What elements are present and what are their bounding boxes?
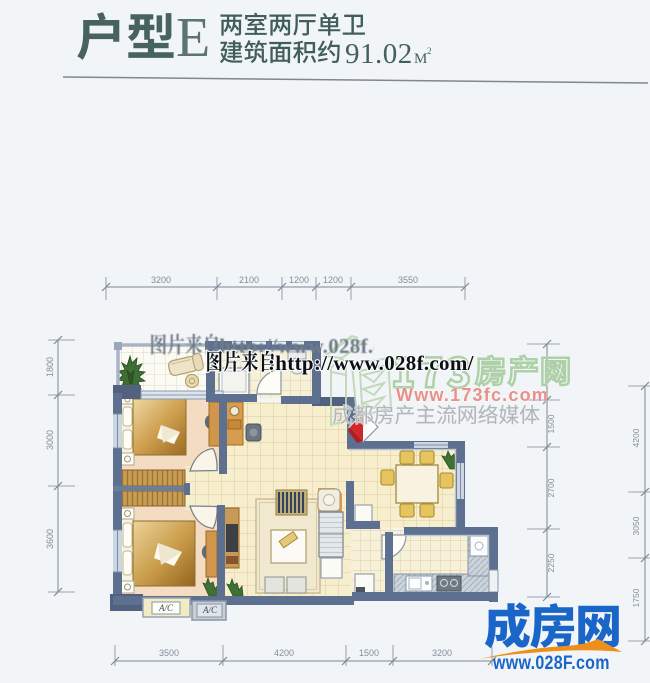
svg-text::http://www.028f.com/: :http://www.028f.com/ bbox=[268, 351, 475, 375]
svg-text:Www.173fc.com: Www.173fc.com bbox=[396, 385, 549, 405]
svg-text:1200: 1200 bbox=[289, 275, 309, 285]
svg-text:A/C: A/C bbox=[158, 603, 174, 613]
svg-text:4200: 4200 bbox=[274, 648, 294, 658]
svg-text:M: M bbox=[414, 51, 427, 67]
svg-text:www.028F.com: www.028F.com bbox=[492, 652, 610, 674]
svg-text:3000: 3000 bbox=[45, 430, 55, 450]
svg-text:91.02: 91.02 bbox=[345, 38, 413, 70]
svg-text:2100: 2100 bbox=[239, 275, 259, 285]
svg-text:1500: 1500 bbox=[359, 648, 379, 658]
svg-text:1800: 1800 bbox=[45, 357, 55, 377]
svg-text:1200: 1200 bbox=[323, 275, 343, 285]
svg-text:3200: 3200 bbox=[151, 275, 171, 285]
svg-text:3500: 3500 bbox=[159, 648, 179, 658]
svg-text:3600: 3600 bbox=[45, 529, 55, 549]
svg-text:1500: 1500 bbox=[546, 414, 556, 433]
svg-text:2250: 2250 bbox=[546, 553, 556, 572]
svg-text:1750: 1750 bbox=[631, 588, 641, 607]
svg-text:2: 2 bbox=[427, 46, 432, 56]
svg-text:3550: 3550 bbox=[398, 275, 418, 285]
svg-text:2700: 2700 bbox=[546, 478, 556, 497]
svg-text:A/C: A/C bbox=[202, 605, 218, 615]
svg-text:E: E bbox=[176, 7, 210, 69]
svg-text:3200: 3200 bbox=[432, 648, 452, 658]
svg-text:3050: 3050 bbox=[631, 516, 641, 535]
svg-text:4200: 4200 bbox=[631, 428, 641, 447]
